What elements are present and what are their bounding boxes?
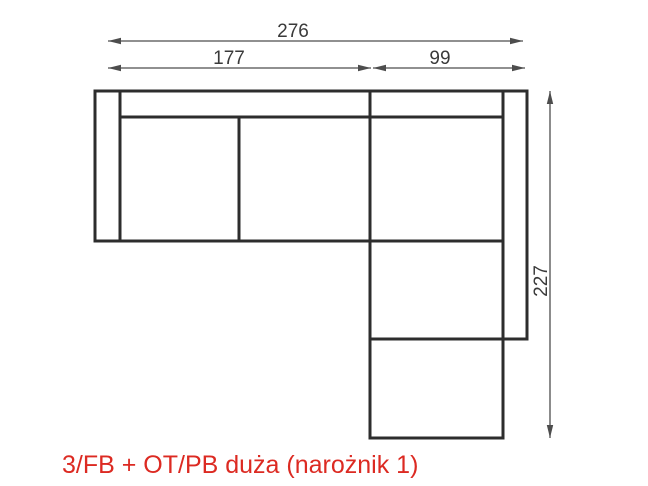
- model-caption: 3/FB + OT/PB duża (narożnik 1): [62, 451, 418, 480]
- dim-label-left-section: 177: [213, 48, 245, 69]
- dim-label-total-depth: 227: [531, 265, 552, 297]
- arrow-left-icon: [108, 65, 121, 71]
- arrow-down-icon: [547, 425, 553, 438]
- arrow-right-icon: [510, 38, 523, 44]
- arrow-right-icon: [512, 65, 525, 71]
- sofa-outline: [95, 91, 527, 438]
- dimension-labels: 276 177 99 227: [213, 21, 552, 297]
- dim-label-total-width: 276: [277, 21, 309, 42]
- sofa-outer-boundary: [95, 91, 527, 438]
- arrow-left-icon: [373, 65, 386, 71]
- arrow-up-icon: [547, 91, 553, 104]
- sofa-plan-svg: 276 177 99 227: [0, 0, 648, 486]
- arrow-left-icon: [108, 38, 121, 44]
- drawing-area: 276 177 99 227 3/FB + OT/PB duża (narożn…: [0, 0, 648, 486]
- dim-label-right-section: 99: [429, 48, 450, 69]
- dimension-lines: [108, 38, 553, 438]
- arrow-right-icon: [358, 65, 371, 71]
